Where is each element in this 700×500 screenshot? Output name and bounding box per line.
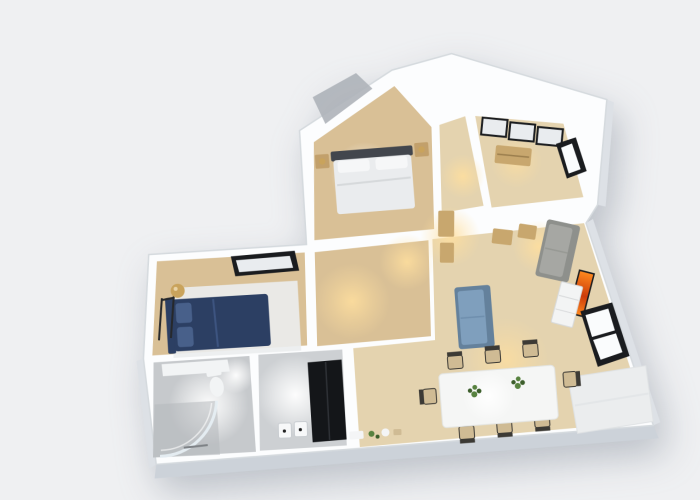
navy-bed-pillow [177,326,194,347]
chair-seat [459,425,475,439]
navy-bed-pillow [175,302,192,323]
decor-candle [393,429,401,435]
chair-seat [563,371,577,387]
side-table [492,228,514,245]
blue-sofa-group [454,285,495,350]
bed-pillow [375,156,408,170]
dining-chair [522,339,538,357]
sliding-wardrobe-panel [481,118,508,137]
desk-cabinet [440,243,454,263]
dining-chair [447,351,463,369]
chair-seat [423,388,437,404]
navy-bed-group [165,292,271,354]
floorplan-canvas [0,0,700,500]
dining-chair [485,345,501,363]
decor-tray [349,431,363,440]
dining-chair [459,425,475,443]
bed-pillow [337,159,370,173]
side-table [517,223,537,240]
sliding-wardrobe-panel [509,122,536,141]
chair-seat [523,343,539,357]
floorplan-svg [0,0,700,500]
chair-seat [447,355,463,369]
desk-cabinet [438,211,454,237]
dining-chair [419,388,437,404]
chair-seat [485,349,501,363]
dining-chair [563,371,581,387]
